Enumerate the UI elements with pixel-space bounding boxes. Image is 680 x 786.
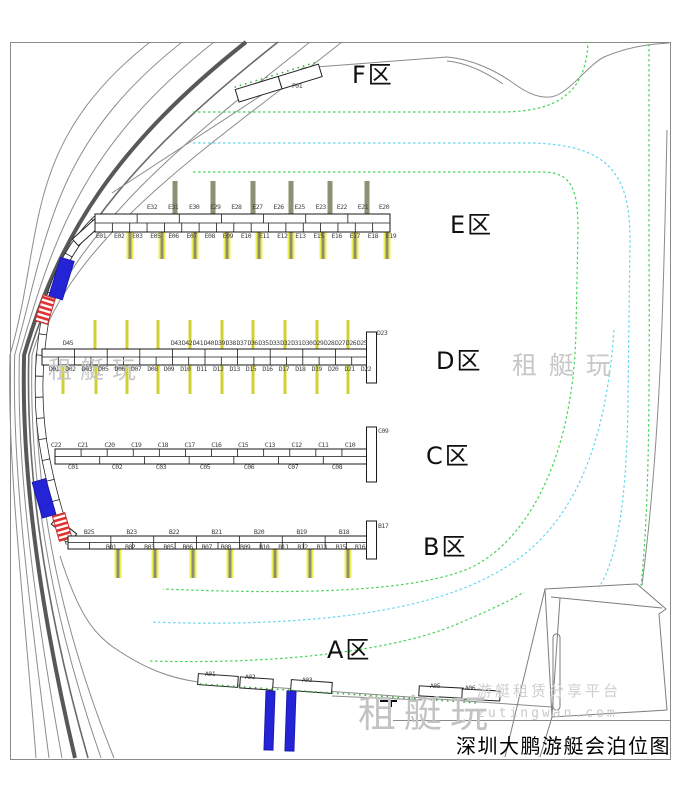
zone-label-e: E区	[450, 205, 493, 240]
berth-map: 租艇玩 租艇玩 租艇玩 游艇租赁分享平台 zutingwan.com D23 C…	[0, 0, 680, 786]
watermark-brand: 租艇玩	[512, 346, 623, 382]
zone-label-f: F区	[352, 55, 394, 90]
zone-label-d: D区	[436, 341, 482, 376]
zone-label-c: C区	[426, 436, 471, 471]
boundary-green-outer	[641, 44, 649, 586]
red-striped-boat-upper	[35, 295, 55, 325]
map-linework	[0, 0, 680, 786]
a02-berth-box	[240, 677, 274, 690]
watermark-tagline: 游艇租赁分享平台	[477, 680, 621, 701]
watermark-domain: zutingwan.com	[477, 706, 618, 721]
blue-finger-pier-1	[264, 691, 275, 750]
zone-label-a: A区	[327, 630, 371, 665]
breakwater-curves	[10, 42, 342, 758]
watermark-brand: 租艇玩	[48, 350, 144, 385]
map-title: 深圳大鹏游艇会泊位图	[456, 730, 671, 759]
a03-berth-box	[291, 680, 333, 694]
a01-berth-box	[198, 674, 239, 688]
zone-label-b: B区	[423, 527, 467, 562]
blue-finger-pier-2	[285, 691, 296, 751]
